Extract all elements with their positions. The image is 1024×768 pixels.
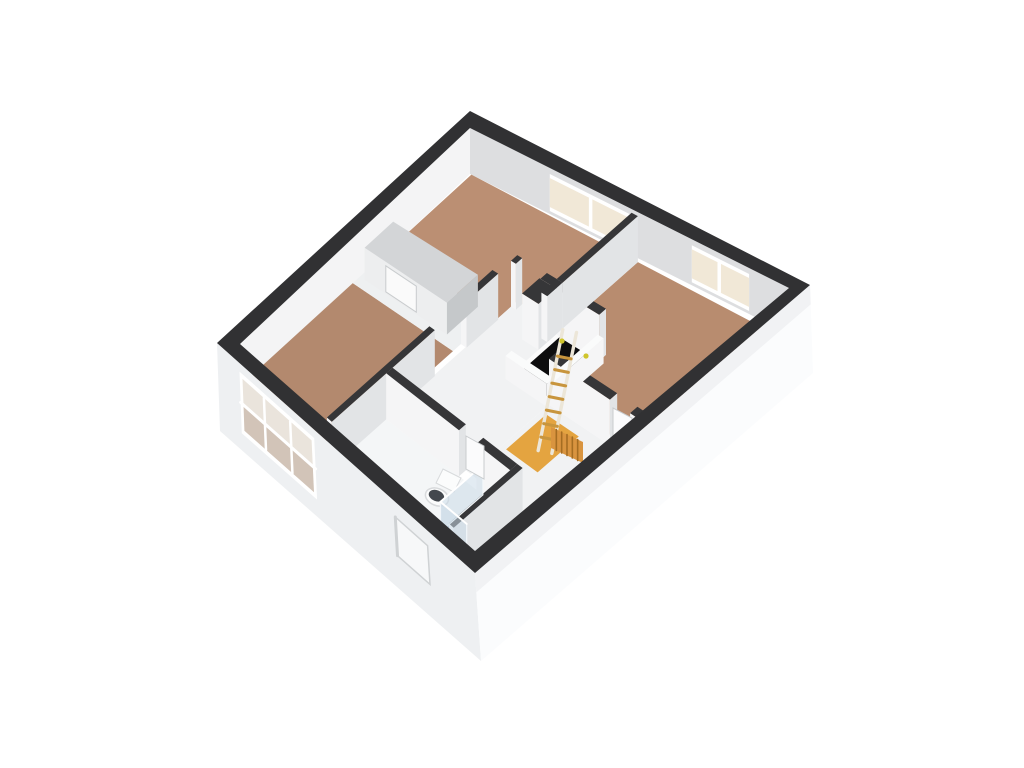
floorplan-3d-viewport[interactable] — [0, 0, 1024, 768]
wall-divider-stub-face-s — [541, 293, 547, 343]
floorplan-3d-render — [0, 0, 1024, 768]
stair-spotlight-dot — [583, 353, 588, 358]
wall-north-room-south-a-face-s — [511, 261, 516, 310]
wall-north-room-south-a-face-e — [516, 258, 522, 310]
stair-spotlight-dot — [559, 338, 564, 343]
wall-bathroom-north-a-face-e — [459, 424, 466, 476]
